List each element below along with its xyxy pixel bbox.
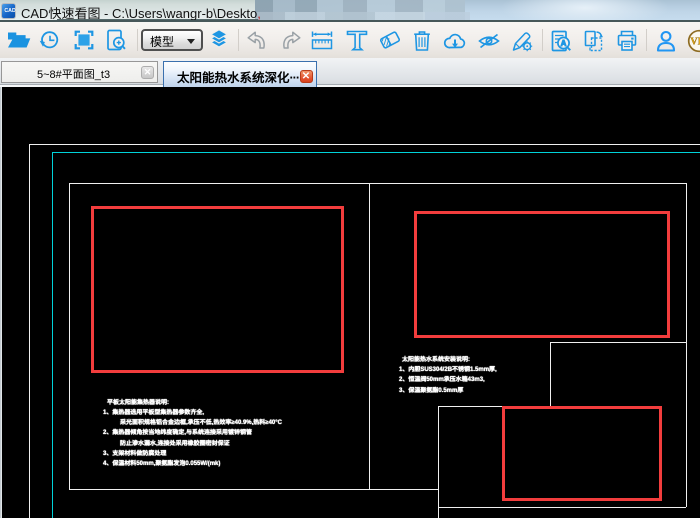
svg-text:A: A	[561, 39, 567, 48]
svg-text:VIP: VIP	[690, 37, 700, 48]
